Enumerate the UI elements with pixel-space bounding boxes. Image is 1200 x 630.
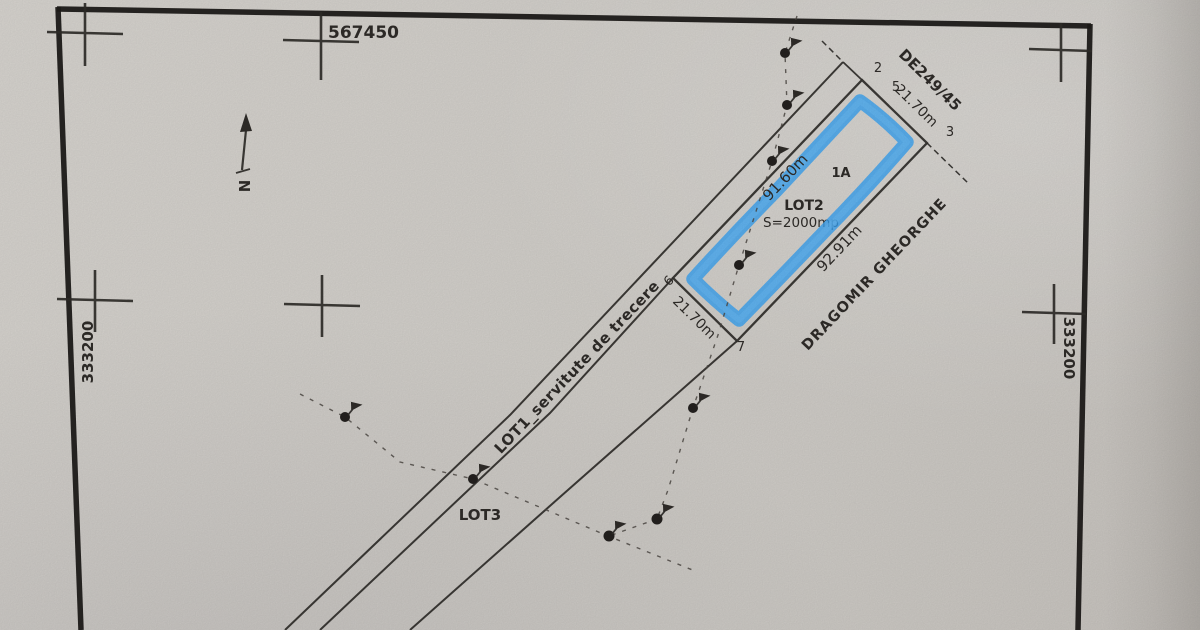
plan-drawing: 567450 333200 333200 N LOT2 S=2000mp — [0, 0, 1200, 630]
scanned-cadastral-plan: 567450 333200 333200 N LOT2 S=2000mp — [0, 0, 1200, 630]
paper-grain-texture — [0, 0, 1200, 630]
